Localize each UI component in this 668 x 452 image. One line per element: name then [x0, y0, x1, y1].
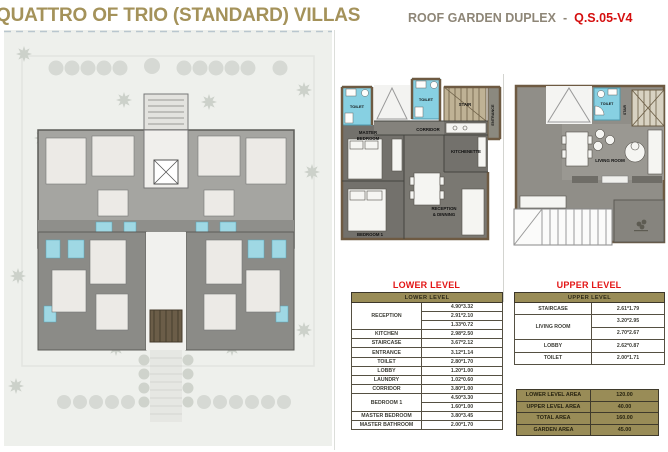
table-row: MASTER BEDROOM3.80*3.45	[352, 412, 503, 421]
lower-level-table-title: LOWER LEVEL	[351, 280, 502, 290]
lower-level-table-block: LOWER LEVEL LOWER LEVEL RECEPTION4.90*3.…	[351, 280, 502, 430]
room-dim: 4.50*3.30	[422, 393, 503, 402]
area-value: 120.00	[591, 390, 659, 402]
room-label: STAIRCASE	[352, 339, 422, 348]
reception-label-2: & DINNING	[433, 212, 456, 217]
area-value: 45.00	[591, 424, 659, 436]
area-label: TOTAL AREA	[517, 413, 591, 425]
toilet-mid-label: TOILET	[419, 97, 434, 102]
site-plan-drawing	[4, 30, 332, 450]
room-dim: 2.80*1.70	[422, 357, 503, 366]
area-summary-table-block: LOWER LEVEL AREA120.00 UPPER LEVEL AREA4…	[516, 389, 658, 436]
table-row: LIVING ROOM3.20*2.95	[515, 315, 665, 327]
master-bedroom-label-2: BEDROOM	[357, 136, 380, 141]
roof-void	[546, 86, 592, 124]
table-row: LOBBY1.20*1.00	[352, 366, 503, 375]
room-label: KITCHEN	[352, 330, 422, 339]
upper-level-table-block: UPPER LEVEL UPPER LEVEL STAIRCASE2.61*1.…	[514, 280, 664, 365]
upper-table-header: UPPER LEVEL	[515, 293, 665, 303]
stair-label: STAIR	[459, 102, 472, 107]
upper-level-table: UPPER LEVEL STAIRCASE2.61*1.79 LIVING RO…	[514, 292, 665, 365]
subtitle-separator: -	[563, 11, 567, 25]
entrance-label: ENTRANCE	[491, 104, 495, 126]
toilet-label: TOILET	[601, 102, 615, 106]
table-row: LOBBY2.62*0.87	[515, 340, 665, 352]
room-label: TOILET	[352, 357, 422, 366]
table-row: TOILET2.80*1.70	[352, 357, 503, 366]
planter-row	[572, 176, 662, 183]
table-row: GARDEN AREA45.00	[517, 424, 659, 436]
corridor-band	[38, 220, 294, 232]
room-dim: 1.02*0.60	[422, 375, 503, 384]
subtitle-text: ROOF GARDEN DUPLEX	[408, 11, 556, 25]
area-label: UPPER LEVEL AREA	[517, 401, 591, 413]
master-bedroom-label-1: MASTER	[359, 130, 378, 135]
room-dim: 2.98*2.50	[422, 330, 503, 339]
room-label: STAIRCASE	[515, 303, 592, 315]
kitchenette-label: KITCHENETTE	[451, 149, 481, 154]
lower-table-header: LOWER LEVEL	[352, 293, 503, 303]
table-row: LAUNDRY1.02*0.60	[352, 375, 503, 384]
terrace-corner	[614, 200, 664, 242]
area-summary-table: LOWER LEVEL AREA120.00 UPPER LEVEL AREA4…	[516, 389, 659, 436]
room-dim: 3.80*1.00	[422, 384, 503, 393]
room-label: LAUNDRY	[352, 375, 422, 384]
lower-level-table: LOWER LEVEL RECEPTION4.90*3.32 2.91*2.10…	[351, 292, 503, 430]
area-label: GARDEN AREA	[517, 424, 591, 436]
page-title: QUATTRO OF TRIO (STANDARD) VILLAS	[0, 5, 360, 27]
table-row: RECEPTION4.90*3.32	[352, 303, 503, 312]
table-row: KITCHEN2.98*2.50	[352, 330, 503, 339]
table-row: STAIRCASE3.67*2.12	[352, 339, 503, 348]
room-label: MASTER BATHROOM	[352, 421, 422, 430]
room-label: CORRIDOR	[352, 384, 422, 393]
room-dim: 3.67*2.12	[422, 339, 503, 348]
upper-level-plan-drawing: TOILET STAIR LIVING ROOM	[502, 74, 668, 252]
room-dim: 2.00*1.70	[422, 421, 503, 430]
stair-label: STAIR	[623, 104, 627, 114]
lower-level-plan: TOILET TOILET STAIR ENTRANCE CORRIDOR MA…	[340, 77, 502, 249]
page-subtitle: ROOF GARDEN DUPLEX-Q.S.05-V4	[408, 11, 632, 25]
room-dim: 1.33*0.72	[422, 321, 503, 330]
bedroom1-label: BEDROOM 1	[357, 232, 384, 237]
room-dim: 4.90*3.32	[422, 303, 503, 312]
table-row: MASTER BATHROOM2.00*1.70	[352, 421, 503, 430]
table-row: ENTRANCE3.12*1.14	[352, 348, 503, 357]
area-label: LOWER LEVEL AREA	[517, 390, 591, 402]
living-room-label: LIVING ROOM	[595, 158, 625, 163]
unit-code: Q.S.05-V4	[574, 11, 632, 25]
room-dim: 3.12*1.14	[422, 348, 503, 357]
vertical-divider-left	[334, 30, 335, 450]
room-dim: 3.80*3.45	[422, 412, 503, 421]
room-dim: 3.20*2.95	[592, 315, 665, 327]
area-value: 40.00	[591, 401, 659, 413]
floor-plan-sheet: QUATTRO OF TRIO (STANDARD) VILLAS ROOF G…	[0, 0, 668, 452]
room-label: ENTRANCE	[352, 348, 422, 357]
area-value: 160.00	[591, 413, 659, 425]
table-row: TOILET2.00*1.71	[515, 352, 665, 364]
stair-void	[374, 85, 410, 121]
room-dim: 2.62*0.87	[592, 340, 665, 352]
stair-flight	[632, 90, 664, 126]
upper-level-table-title: UPPER LEVEL	[514, 280, 664, 290]
table-row: STAIRCASE2.61*1.79	[515, 303, 665, 315]
table-row: CORRIDOR3.80*1.00	[352, 384, 503, 393]
toilet-left-label: TOILET	[350, 104, 365, 109]
table-row: TOTAL AREA160.00	[517, 413, 659, 425]
room-label: MASTER BEDROOM	[352, 412, 422, 421]
room-label: LIVING ROOM	[515, 315, 592, 340]
table-row: LOWER LEVEL AREA120.00	[517, 390, 659, 402]
site-plan	[4, 30, 332, 450]
room-label: RECEPTION	[352, 303, 422, 330]
reception-label-1: RECEPTION	[431, 206, 456, 211]
lower-level-plan-drawing: TOILET TOILET STAIR ENTRANCE CORRIDOR MA…	[340, 77, 502, 249]
corridor-label: CORRIDOR	[416, 127, 440, 132]
room-label: LOBBY	[515, 340, 592, 352]
room-label: TOILET	[515, 352, 592, 364]
room-label: BEDROOM 1	[352, 393, 422, 411]
table-row: BEDROOM 14.50*3.30	[352, 393, 503, 402]
room-dim: 2.00*1.71	[592, 352, 665, 364]
room-dim: 2.70*2.67	[592, 327, 665, 339]
room-dim: 2.91*2.10	[422, 312, 503, 321]
upper-level-plan: TOILET STAIR LIVING ROOM	[502, 74, 668, 252]
room-dim: 1.20*1.00	[422, 366, 503, 375]
table-row: UPPER LEVEL AREA40.00	[517, 401, 659, 413]
pergola	[514, 209, 612, 245]
room-dim: 2.61*1.79	[592, 303, 665, 315]
room-dim: 1.60*1.00	[422, 403, 503, 412]
room-label: LOBBY	[352, 366, 422, 375]
building-block	[38, 94, 294, 350]
